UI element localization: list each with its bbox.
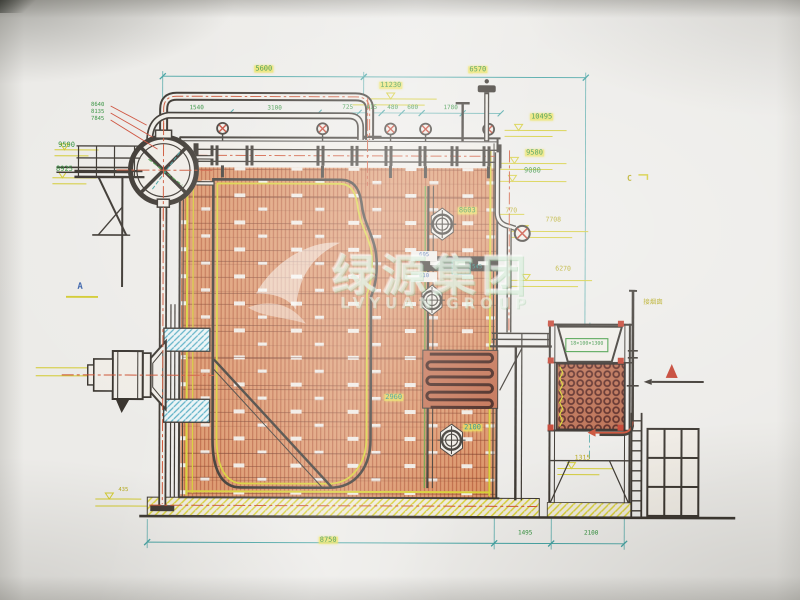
superheater-coil [423,350,498,408]
elev-label-2960: 2960 [384,394,403,401]
economizer [547,321,632,503]
dim-label-415: 415 [366,105,377,111]
elev-label-11230: 11230 [379,82,402,89]
dim-label-1780: 1780 [443,105,457,111]
dim-label-480: 480 [387,105,398,111]
ground-level-marker [644,364,704,385]
flue-outlet-note: 接烟囱 [643,299,663,306]
dim-label-3100: 3100 [267,106,281,112]
elev-label-9080: 9080 [524,167,541,174]
label-610: 610 [419,274,429,280]
dim-label-600: 600 [407,105,418,111]
ground-line [139,516,735,518]
elev-label-10495: 10495 [530,113,553,120]
dim-label-1540: 1540 [189,105,203,111]
foundation-hatch [147,497,631,518]
label-545: 545 [472,265,482,271]
elev-label-8135: 8135 [91,110,104,116]
elev-label-435: 435 [118,488,128,494]
right-platform [489,333,552,500]
drawing-sheet: 5600 6570 11230 1540 3100 725 415 480 60… [0,0,800,600]
section-marker-c: C [627,175,632,183]
dim-label-5600: 5600 [254,65,273,72]
photographed-blueprint: 5600 6570 11230 1540 3100 725 415 480 60… [0,0,800,600]
elev-label-7845: 7845 [91,117,104,123]
elev-label-1315: 1315 [575,455,591,462]
elev-label-7708: 7708 [545,217,561,224]
elev-label-8640: 8640 [91,103,104,109]
stair-grid [647,429,698,516]
elev-label-6270: 6270 [555,266,571,273]
label-605: 605 [419,253,429,259]
dim-label-725: 725 [342,105,353,111]
elev-label-2100: 2100 [463,424,482,431]
dim-label-2100-bottom: 2100 [584,531,598,537]
elev-label-8603: 8603 [458,207,477,214]
elev-label-9590: 9590 [58,142,75,149]
economizer-spec-label: 18×100×1300 [570,342,603,347]
section-marker-a: A [77,283,82,292]
dim-label-6570: 6570 [468,66,487,73]
dim-label-1495: 1495 [518,530,532,536]
boiler-elevation-drawing [0,0,800,600]
elev-label-8925: 8925 [56,166,73,173]
elev-label-9580: 9580 [525,149,544,156]
dim-label-8750: 8750 [319,537,338,544]
elev-label-770: 770 [505,207,517,214]
